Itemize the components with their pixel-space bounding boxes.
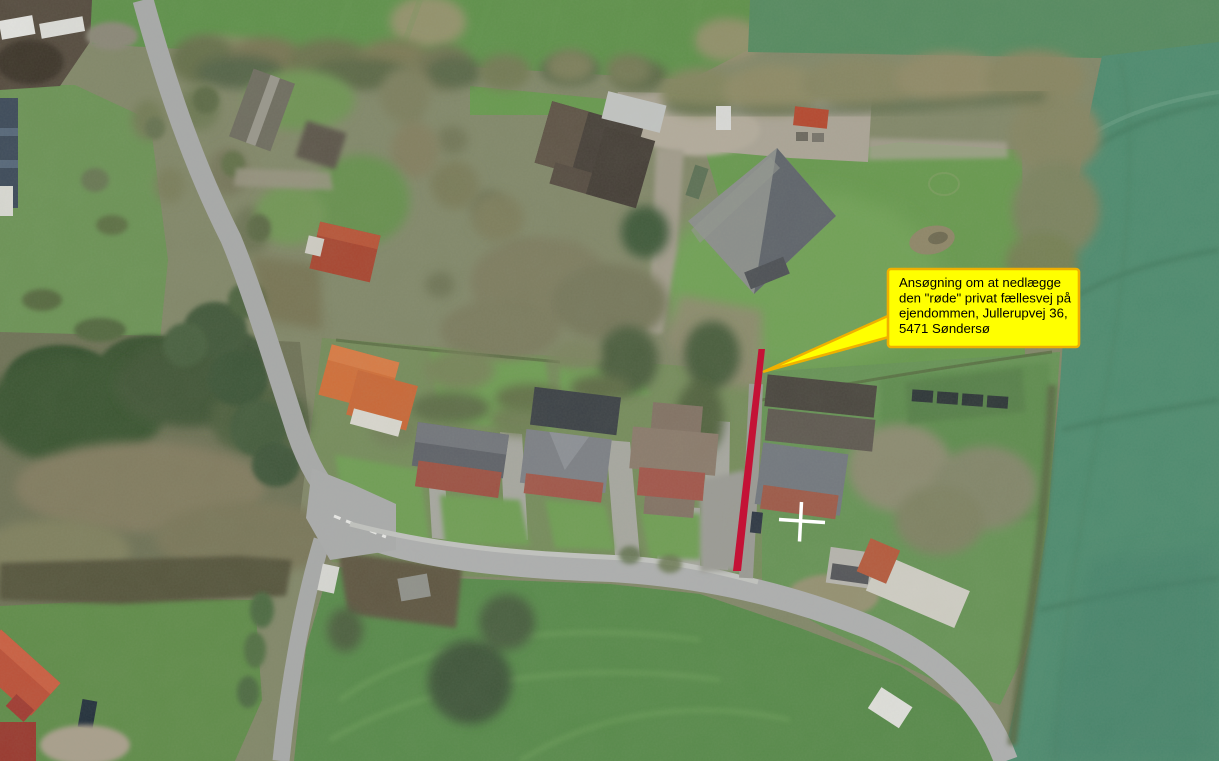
svg-text:den "røde" privat fællesvej på: den "røde" privat fællesvej på — [899, 290, 1072, 305]
svg-text:5471 Søndersø: 5471 Søndersø — [899, 321, 990, 336]
svg-text:Ansøgning om at nedlægge: Ansøgning om at nedlægge — [899, 275, 1061, 290]
svg-text:ejendommen, Jullerupvej 36,: ejendommen, Jullerupvej 36, — [899, 306, 1068, 321]
